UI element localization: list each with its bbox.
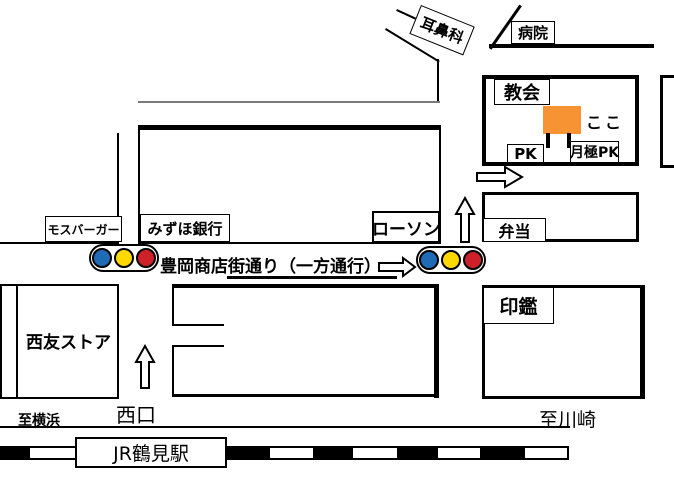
seiyu-label: 西友ストア	[26, 328, 111, 353]
up-arrow-icon	[454, 196, 476, 244]
central-south-building-top	[172, 284, 439, 288]
central-south-building-left-lower	[172, 345, 174, 397]
road-line-top-right-thick	[489, 44, 654, 48]
street-name-label: 豊岡商店街通り（一方通行）	[160, 252, 381, 277]
signal-red-light	[136, 248, 156, 268]
central-south-notch-top	[172, 324, 224, 326]
signal-red-light	[463, 250, 483, 270]
west-exit-label: 西口	[116, 399, 156, 428]
street-underline	[227, 276, 397, 279]
right-arrow-icon	[475, 165, 525, 189]
ent-clinic-label: 耳鼻科	[417, 12, 467, 48]
mizuho-bank-label: みずほ銀行	[140, 214, 230, 242]
here-marker-leg-left	[546, 133, 550, 148]
right-arrow-icon	[377, 256, 417, 278]
hand-drawn-access-map: 耳鼻科 病院 教会 ここ PK 月極PK 弁当 みずほ銀行 ローソン モスバーガ…	[0, 0, 674, 484]
central-south-notch-bottom	[172, 345, 224, 347]
road-line-station-street	[0, 426, 570, 428]
church-label: 教会	[494, 79, 550, 105]
hospital-label: 病院	[511, 21, 555, 44]
parking-monthly-label: 月極PK	[570, 141, 619, 163]
road-line-gray	[138, 101, 440, 103]
parking-pk-label: PK	[507, 144, 544, 163]
mos-burger-label: モスバーガー	[45, 216, 122, 242]
seiyu-inner-line	[16, 284, 18, 399]
railroad-tie	[480, 448, 525, 458]
railroad-tie	[227, 448, 270, 458]
bento-label: 弁当	[483, 218, 546, 242]
traffic-light-right	[416, 246, 486, 274]
lawson-label: ローソン	[372, 211, 440, 243]
central-south-building-bottom	[172, 394, 438, 397]
building-top-right	[660, 75, 674, 168]
signal-yellow-light	[441, 250, 461, 270]
signal-blue-light	[419, 250, 439, 270]
to-kawasaki-label: 至川崎	[539, 405, 596, 432]
railroad-tie	[0, 448, 30, 458]
to-yokohama-label: 至横浜	[18, 410, 60, 430]
traffic-light-left	[89, 244, 159, 272]
road-line-vertical-top	[437, 59, 439, 102]
signal-blue-light	[92, 248, 112, 268]
station-label-box: JR鶴見駅	[75, 437, 227, 468]
up-arrow-icon	[134, 344, 156, 390]
signal-yellow-light	[114, 248, 134, 268]
central-south-building-right	[434, 284, 439, 398]
here-marker	[543, 106, 581, 134]
central-south-building-left-upper	[172, 284, 174, 326]
here-label: ここ	[586, 109, 624, 133]
seal-shop-label: 印鑑	[483, 287, 554, 324]
railroad-tie	[313, 448, 353, 458]
railroad-tie	[397, 448, 438, 458]
